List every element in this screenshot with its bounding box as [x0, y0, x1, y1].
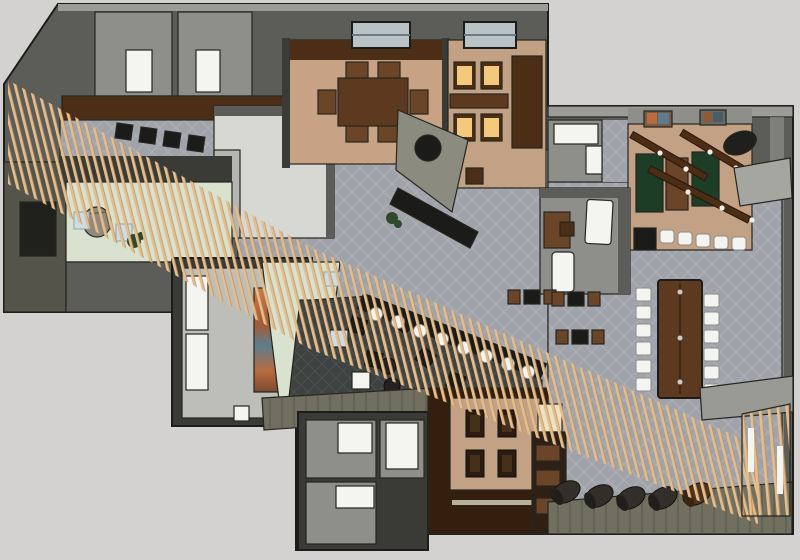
chair [410, 90, 428, 114]
office-chair [560, 222, 574, 236]
green-table-1 [636, 154, 663, 212]
top-wall-cap [58, 4, 548, 11]
white-panel-2 [186, 334, 208, 390]
booth-table [450, 94, 508, 108]
side-table [466, 168, 483, 184]
floor-plan-svg [0, 0, 800, 560]
cube-table [234, 406, 249, 421]
restroom-door-2 [386, 423, 418, 469]
entry-door-opening [20, 202, 56, 256]
chair [318, 90, 336, 114]
side-room-door [554, 124, 598, 144]
dining-wall-left [282, 38, 290, 168]
daybed [585, 199, 613, 244]
right-wall-slat-screen [742, 404, 790, 516]
restroom-door-1 [338, 423, 372, 453]
two-top [508, 290, 556, 304]
restrooms [298, 412, 428, 550]
games-corner-tile [602, 120, 628, 182]
two-top [552, 292, 600, 306]
side-room-door [586, 146, 602, 174]
service-wall [255, 12, 283, 96]
office-room [540, 188, 630, 294]
pit-step [452, 500, 540, 505]
floor-plan-render [0, 0, 800, 560]
doorway-2 [196, 50, 220, 92]
doorway-1 [126, 50, 152, 92]
office-sofa [552, 252, 574, 292]
chair [378, 62, 400, 80]
chair [346, 124, 368, 142]
round-table [415, 135, 441, 161]
restroom-door-3 [336, 486, 374, 508]
lounge-table-2 [352, 372, 370, 389]
games-bar-end [634, 228, 656, 250]
booth-cabinet [512, 56, 542, 148]
two-top [556, 330, 604, 344]
chair [346, 62, 368, 80]
